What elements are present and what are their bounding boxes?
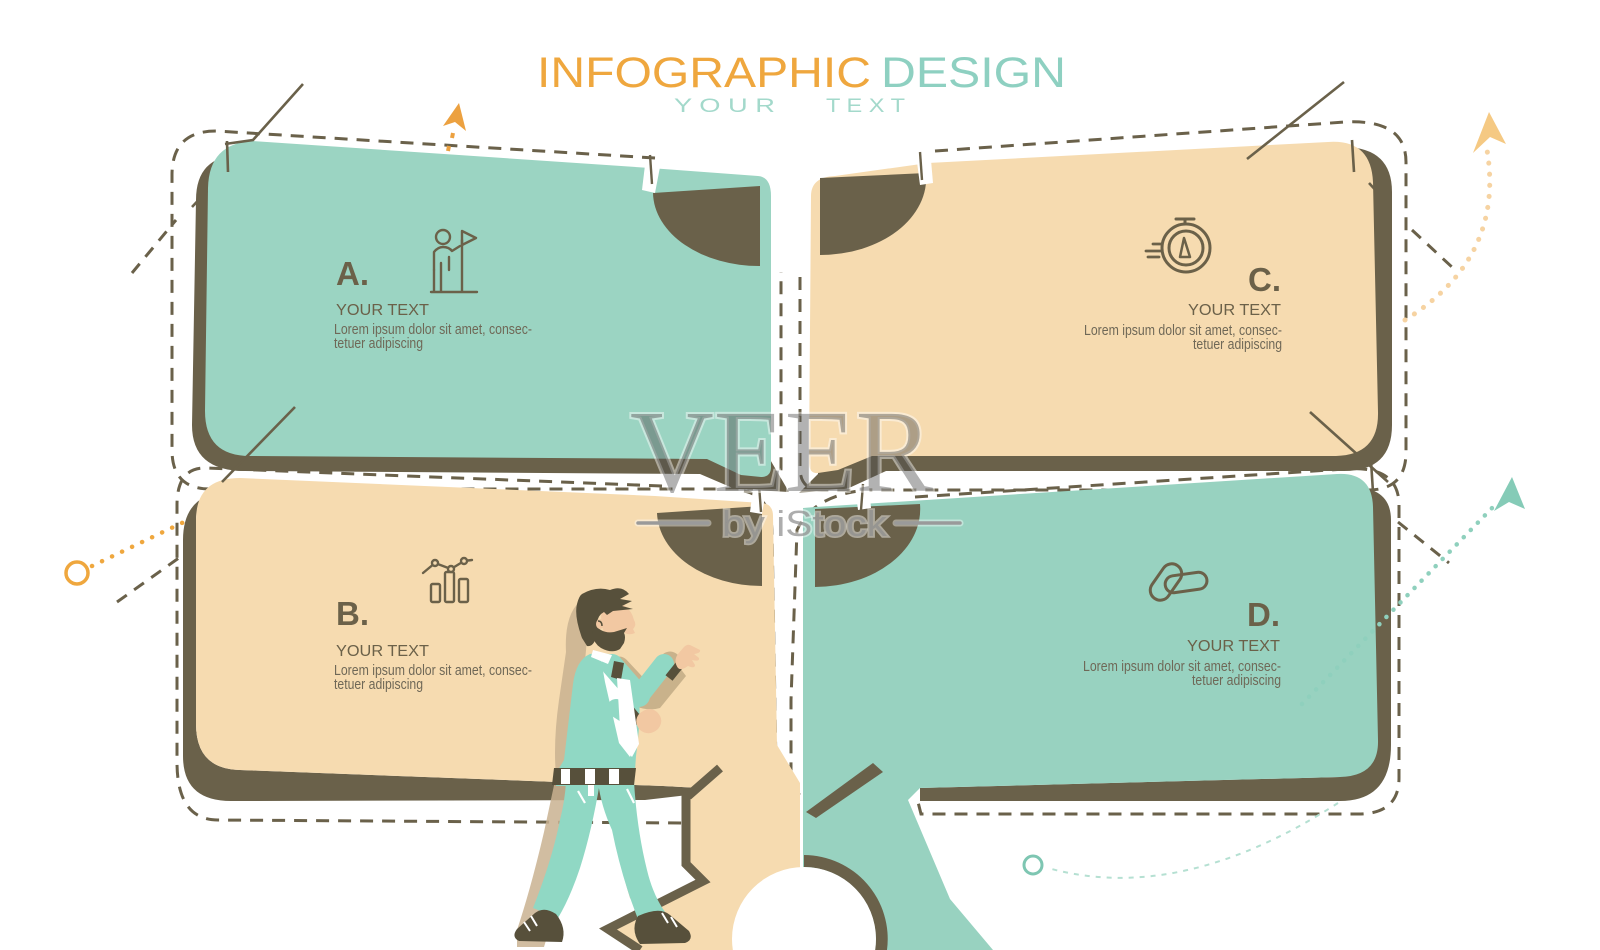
svg-text:Y O U R: Y O U R <box>674 96 775 117</box>
svg-text:A.: A. <box>336 255 369 292</box>
svg-text:D.: D. <box>1247 596 1280 633</box>
svg-text:tetuer adipiscing: tetuer adipiscing <box>334 335 423 352</box>
svg-text:VEER: VEER <box>630 386 933 517</box>
svg-text:tetuer adipiscing: tetuer adipiscing <box>334 676 423 693</box>
svg-text:tetuer adipiscing: tetuer adipiscing <box>1193 336 1282 353</box>
svg-text:YOUR TEXT: YOUR TEXT <box>1188 302 1281 319</box>
svg-text:T E X T: T E X T <box>826 96 905 117</box>
svg-text:DESIGN: DESIGN <box>881 49 1066 97</box>
svg-text:YOUR TEXT: YOUR TEXT <box>336 302 429 319</box>
svg-text:YOUR TEXT: YOUR TEXT <box>1187 638 1280 655</box>
svg-text:by iStock: by iStock <box>722 503 888 544</box>
svg-text:YOUR TEXT: YOUR TEXT <box>336 643 429 660</box>
svg-text:B.: B. <box>336 595 369 632</box>
svg-text:tetuer adipiscing: tetuer adipiscing <box>1192 672 1281 689</box>
svg-text:INFOGRAPHIC: INFOGRAPHIC <box>537 49 871 97</box>
svg-text:C.: C. <box>1248 261 1281 298</box>
